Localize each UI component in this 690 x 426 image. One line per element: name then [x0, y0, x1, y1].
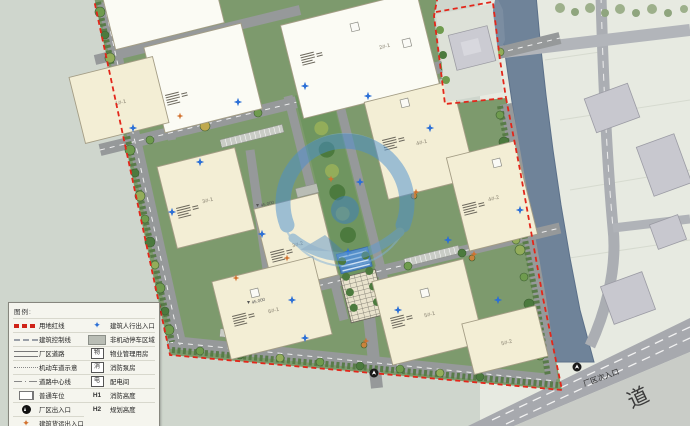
main-gate-icon	[370, 369, 379, 378]
secondary-gate-icon	[573, 363, 582, 372]
legend-label: 非机动停车区域	[110, 335, 155, 344]
legend-item-freight-entrance: ✦ 建筑货运出入口	[13, 416, 84, 426]
legend-item-site-redline: 用地红线	[13, 318, 84, 332]
pedestrian-entrance-icon: ✦	[93, 321, 101, 330]
legend-item-pedestrian-entrance: ✦ 建筑人行出入口	[84, 318, 155, 332]
legend-label: 消防高度	[110, 391, 136, 400]
legend-item-road-centerline: 道路中心线	[13, 374, 84, 388]
legend-label: 用地红线	[39, 321, 65, 330]
legend-label: 消防泵房	[110, 363, 136, 372]
legend-left-column: 用地红线 建筑控制线 厂区道路 机动车道示意 道路中心线 普通车位	[13, 318, 84, 426]
legend-label: 普通车位	[39, 391, 65, 400]
notch-parcel	[436, 4, 503, 102]
legend-panel: 图例: 用地红线 建筑控制线 厂区道路 机动车道示意 道路中心线	[8, 302, 160, 426]
legend-item-nonmotor-parking: 非机动停车区域	[84, 332, 155, 346]
legend-label: 规划高度	[110, 405, 136, 414]
legend-label: 厂区道路	[39, 349, 65, 358]
site-redline-icon	[14, 324, 38, 328]
road-centerline-icon	[14, 381, 38, 383]
factory-road-icon	[14, 351, 38, 357]
property-room-icon: 物	[91, 348, 104, 359]
legend-label: 配电间	[110, 377, 129, 386]
fire-pump-room-icon: 消	[91, 362, 104, 373]
motor-lane-icon	[14, 367, 38, 368]
legend-label: 建筑控制线	[39, 335, 71, 344]
legend-right-column: ✦ 建筑人行出入口 非机动停车区域 物 物业管理用房 消 消防泵房 电 配电间 …	[84, 318, 155, 426]
legend-item-property-room: 物 物业管理用房	[84, 346, 155, 360]
legend-label: 建筑货运出入口	[39, 419, 84, 426]
freight-entrance-icon: ✦	[22, 419, 30, 426]
legend-label: 物业管理用房	[110, 349, 148, 358]
legend-item-motor-lane: 机动车道示意	[13, 360, 84, 374]
legend-item-factory-road: 厂区道路	[13, 346, 84, 360]
legend-item-planning-height: H2 规划高度	[84, 402, 155, 416]
legend-label: 厂区出入口	[39, 405, 71, 414]
planning-height-icon: H2	[93, 406, 101, 413]
fire-height-icon: H1	[93, 392, 101, 399]
site-plan: 2#-1 1#-1 3#-1 3#-2 6#-1 4#-1 4#-2 5#-1 …	[0, 0, 690, 426]
legend-item-fire-pump-room: 消 消防泵房	[84, 360, 155, 374]
nonmotor-parking-icon	[88, 335, 106, 345]
control-line-icon	[14, 339, 38, 341]
legend-label: 建筑人行出入口	[110, 321, 155, 330]
legend-item-parking-space: 普通车位	[13, 388, 84, 402]
legend-item-fire-height: H1 消防高度	[84, 388, 155, 402]
legend-item-site-gate: 厂区出入口	[13, 402, 84, 416]
legend-label: 道路中心线	[39, 377, 71, 386]
legend-label: 机动车道示意	[39, 363, 77, 372]
legend-item-control-line: 建筑控制线	[13, 332, 84, 346]
parking-space-icon	[19, 391, 34, 400]
power-room-icon: 电	[91, 376, 104, 387]
legend-title: 图例:	[14, 306, 155, 316]
legend-item-power-room: 电 配电间	[84, 374, 155, 388]
site-gate-icon	[22, 405, 31, 414]
